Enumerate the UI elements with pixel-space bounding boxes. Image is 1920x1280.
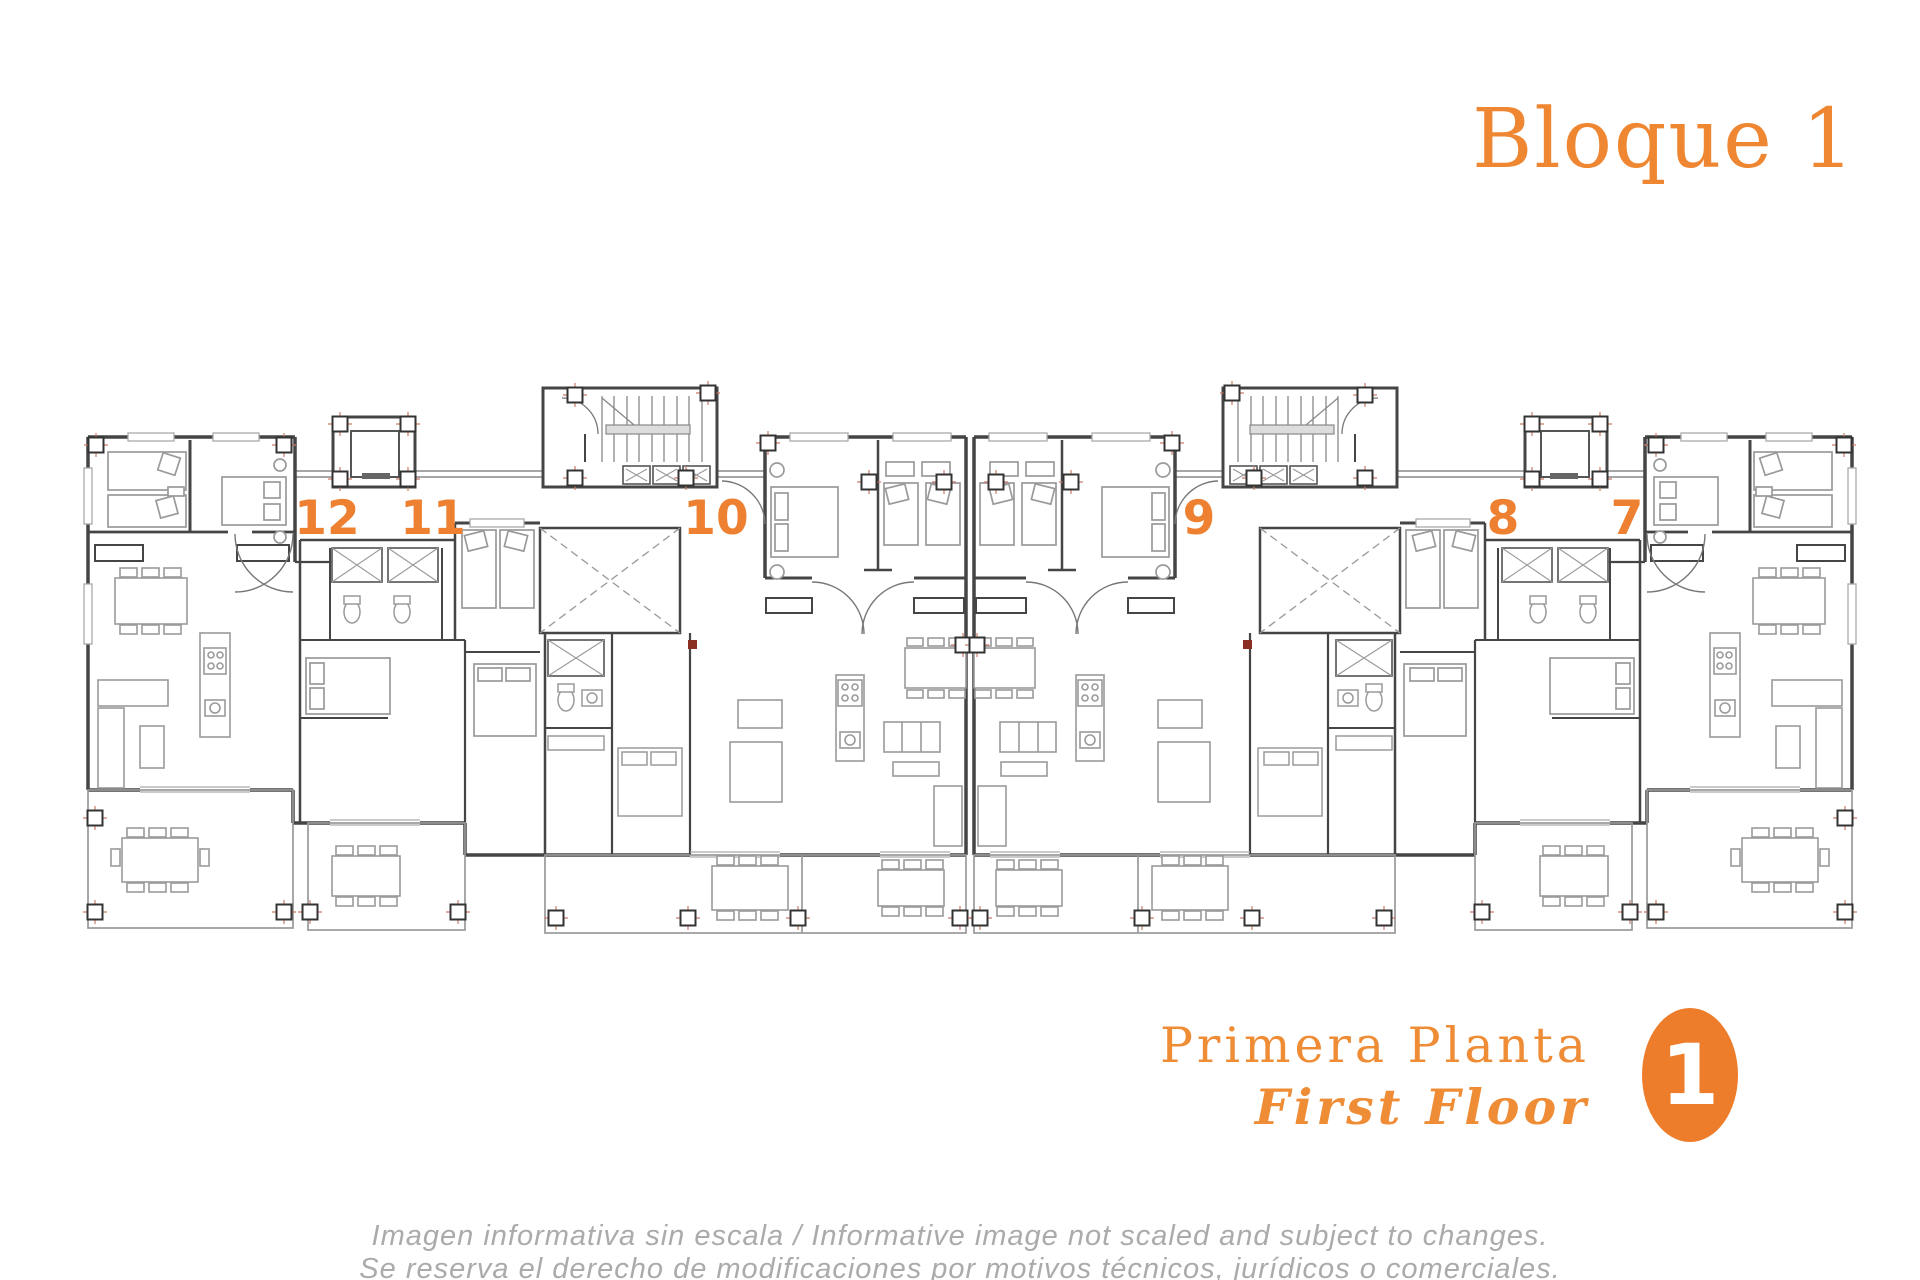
floor-number-badge[interactable]: 1 — [1642, 1008, 1738, 1142]
floor-plan: 12 11 10 9 8 7 — [83, 381, 1857, 933]
building-right-half — [965, 381, 1857, 933]
unit-number-8[interactable]: 8 — [1487, 491, 1520, 546]
disclaimer: Imagen informativa sin escala / Informat… — [0, 1220, 1920, 1280]
floor-label-en: First Floor — [1160, 1077, 1590, 1138]
unit-number-12[interactable]: 12 — [294, 491, 359, 546]
disclaimer-line-2: Se reserva el derecho de modificaciones … — [0, 1253, 1920, 1280]
floor-label-es: Primera Planta — [1160, 1016, 1590, 1077]
disclaimer-line-1: Imagen informativa sin escala / Informat… — [0, 1220, 1920, 1253]
floor-plan-svg: 12 11 10 9 8 7 — [0, 0, 1920, 1280]
page: 12 11 10 9 8 7 Bloque 1 Primera Planta F… — [0, 0, 1920, 1280]
unit-number-11[interactable]: 11 — [400, 491, 465, 546]
building-left-half — [83, 381, 975, 933]
page-title: Bloque 1 — [1472, 92, 1856, 187]
unit-number-7[interactable]: 7 — [1611, 491, 1644, 546]
unit-number-9[interactable]: 9 — [1183, 491, 1216, 546]
floor-label: Primera Planta First Floor — [1160, 1016, 1590, 1138]
unit-number-10[interactable]: 10 — [683, 491, 748, 546]
